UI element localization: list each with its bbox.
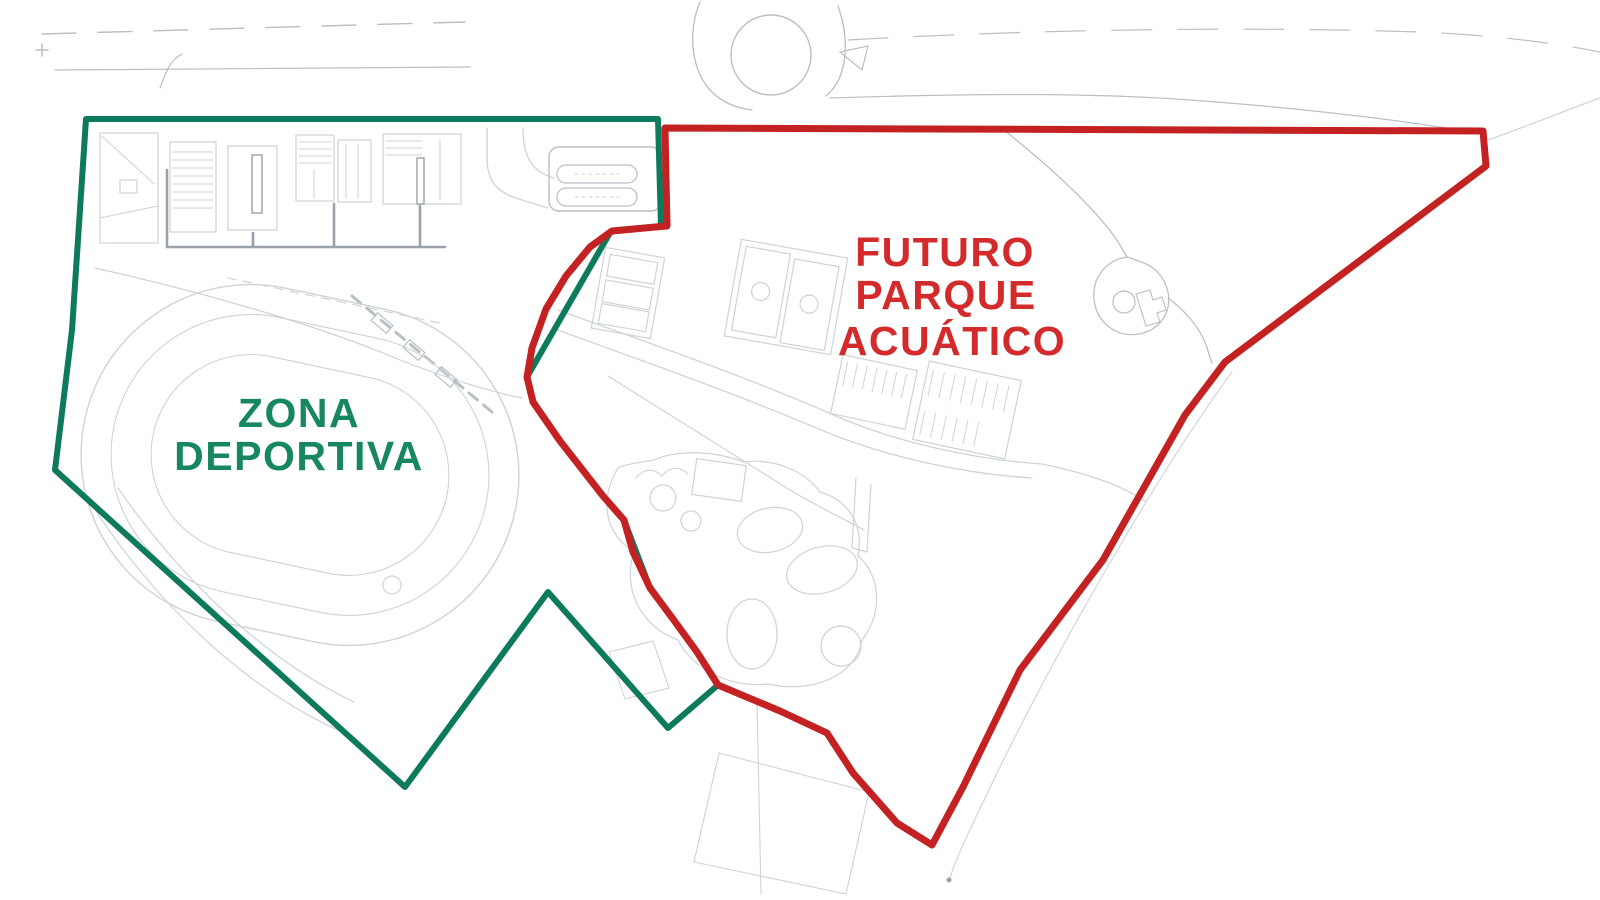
road-edge-corner [1488, 98, 1600, 140]
survey-mark [36, 44, 48, 56]
basketball-court [780, 259, 839, 351]
building [296, 135, 334, 201]
building [692, 459, 747, 502]
building-core [252, 155, 262, 213]
pool [733, 502, 807, 559]
roundabout-approach-left [693, 2, 752, 110]
building-detail [346, 144, 358, 198]
bleacher [371, 313, 393, 334]
building-detail [386, 140, 440, 200]
building-core [417, 158, 424, 204]
park-road [608, 376, 864, 530]
road-edge-top-left [42, 22, 465, 34]
pool [821, 626, 861, 666]
building [170, 142, 216, 232]
futuro-parque-acuatico-label-line-1: FUTURO [855, 229, 1035, 275]
futuro-parque-acuatico-label-line-3: ACUÁTICO [838, 318, 1066, 364]
parcel-line [757, 700, 761, 894]
slide-detail [636, 468, 688, 478]
building [831, 355, 918, 429]
parking-stalls [575, 174, 619, 197]
pool [650, 485, 676, 511]
building-stripes [920, 411, 979, 446]
building-detail [100, 206, 158, 243]
roundabout [731, 15, 811, 95]
building-stripes [928, 370, 1009, 411]
building [338, 140, 371, 202]
basketball-block [724, 239, 847, 354]
building [100, 133, 158, 243]
building [913, 361, 1022, 459]
path [95, 268, 522, 398]
pool [781, 538, 862, 601]
road-detail [160, 54, 182, 88]
park-road [1042, 464, 1146, 502]
road-edge-top-left [55, 67, 470, 70]
waterpark-area-outline [607, 453, 877, 687]
court-circle [750, 281, 771, 302]
pool [727, 599, 777, 669]
court-circle [799, 294, 820, 315]
futuro-parque-acuatico-label: FUTURO PARQUE ACUÁTICO [838, 229, 1066, 364]
building-detail [120, 180, 137, 193]
grandstand-steps [352, 296, 492, 412]
court-block [591, 247, 664, 338]
site-plan-map: ZONA DEPORTIVA FUTURO PARQUE ACUÁTICO [0, 0, 1600, 900]
basketball-court [731, 246, 790, 338]
trail [950, 372, 1232, 878]
pool [681, 511, 701, 531]
site-plan-page: ZONA DEPORTIVA FUTURO PARQUE ACUÁTICO [0, 0, 1600, 900]
cul-de-sac-island [1113, 291, 1135, 313]
building-detail [299, 142, 331, 198]
path-right [1168, 298, 1212, 363]
zone-outlines [55, 119, 1486, 845]
plan-detail [852, 478, 871, 552]
plan-dot [947, 878, 952, 883]
building-stripes [843, 362, 907, 398]
zona-deportiva-label: ZONA DEPORTIVA [174, 390, 424, 479]
court [607, 254, 658, 284]
access-road [487, 128, 548, 208]
futuro-parque-acuatico-label-line-2: PARQUE [855, 272, 1036, 318]
zona-deportiva-label-line-2: DEPORTIVA [174, 433, 424, 479]
building-stairs [173, 152, 213, 208]
parcel-outline [694, 753, 869, 894]
building [383, 134, 461, 204]
road-edge-top-right [848, 29, 1600, 52]
plan-circle [383, 576, 401, 594]
bleacher [403, 340, 425, 361]
building-detail [102, 136, 154, 184]
parking-lot [549, 147, 661, 211]
zona-deportiva-label-line-1: ZONA [238, 390, 360, 436]
